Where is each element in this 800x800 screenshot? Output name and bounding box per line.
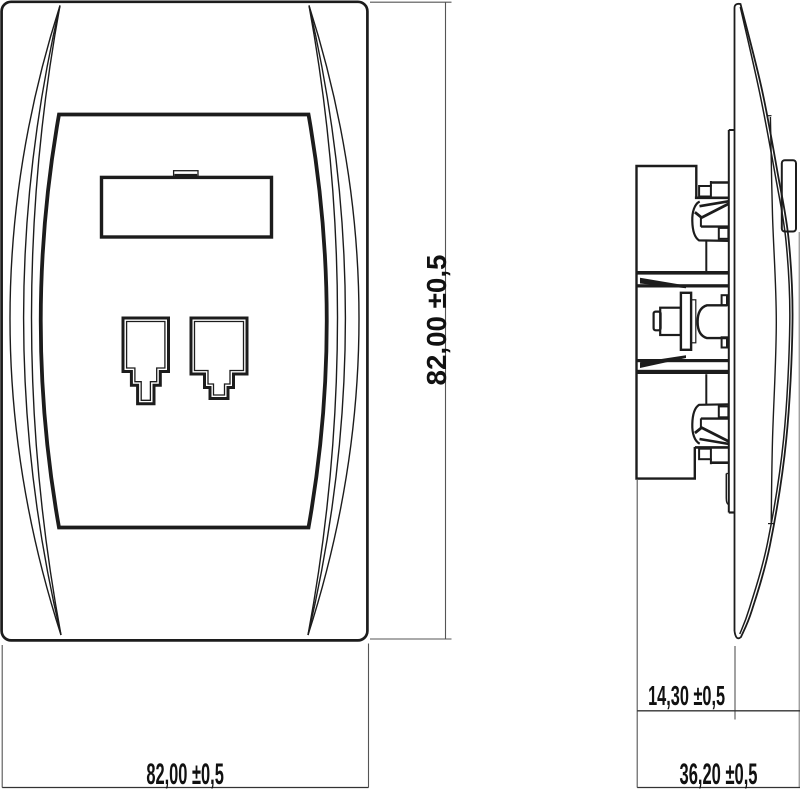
- svg-text:14,30 ±0,5: 14,30 ±0,5: [648, 680, 725, 711]
- svg-text:82,00 ±0,5: 82,00 ±0,5: [421, 255, 452, 386]
- svg-text:82,00 ±0,5: 82,00 ±0,5: [146, 758, 224, 791]
- svg-text:36,20 ±0,5: 36,20 ±0,5: [680, 758, 758, 791]
